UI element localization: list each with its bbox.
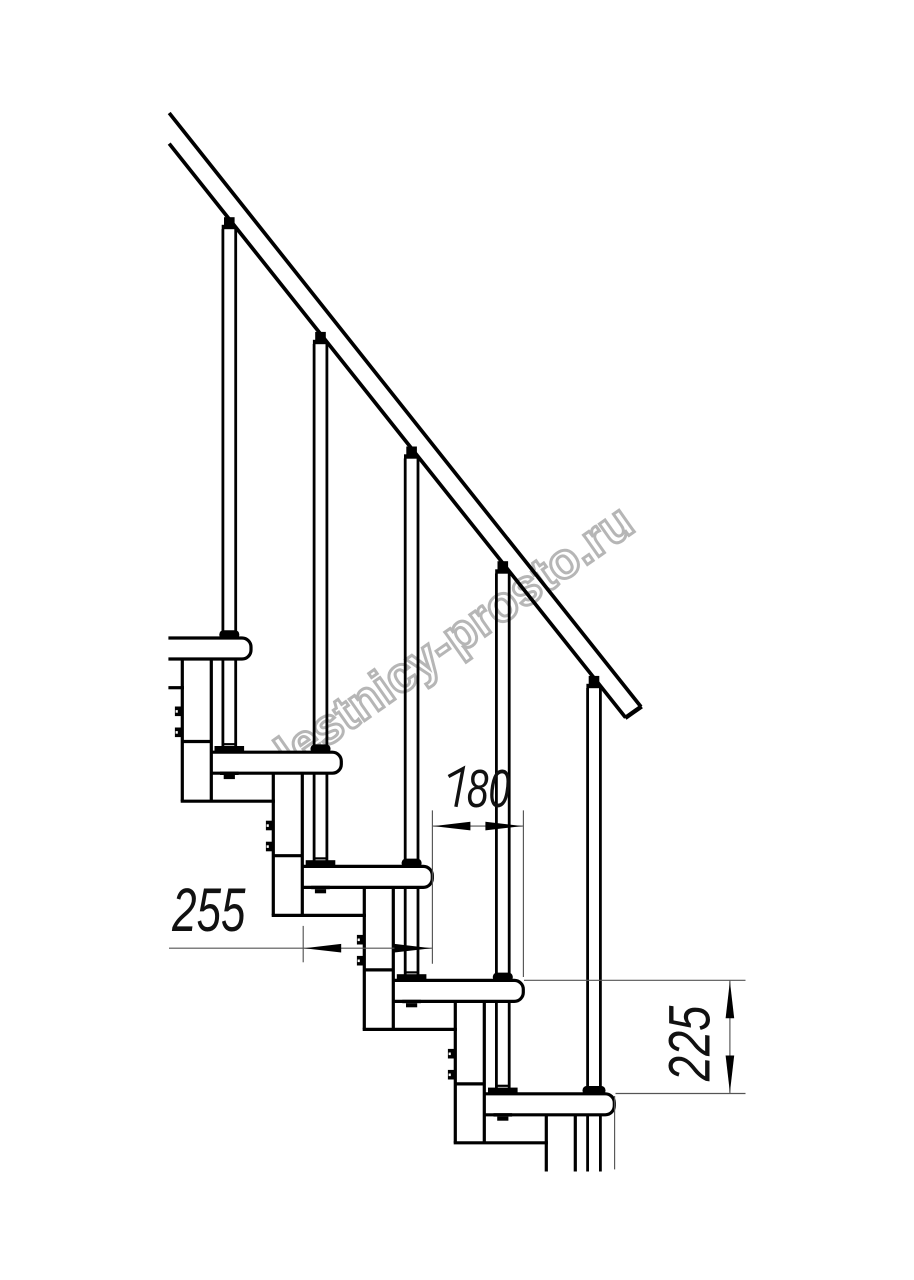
svg-text:255: 255: [171, 877, 245, 945]
svg-text:225: 225: [658, 1005, 723, 1082]
svg-text:80: 80: [467, 758, 510, 819]
